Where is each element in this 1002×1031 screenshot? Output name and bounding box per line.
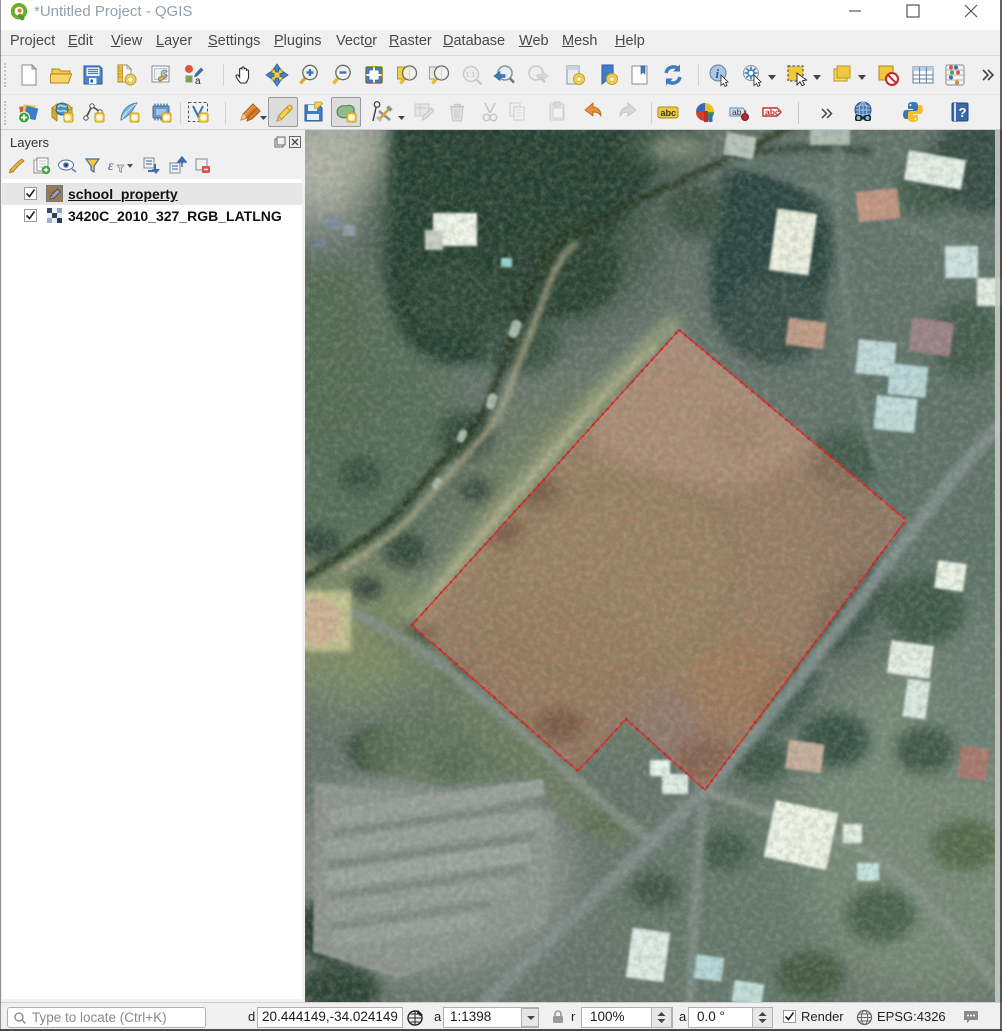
svg-text:1:1: 1:1 — [466, 72, 476, 79]
svg-text:?: ? — [959, 105, 967, 120]
svg-text:abc: abc — [661, 108, 677, 118]
svg-text:ε: ε — [108, 159, 114, 174]
svg-text:abc: abc — [765, 107, 780, 117]
svg-text:i: i — [716, 66, 720, 81]
svg-text:ab: ab — [732, 107, 742, 117]
svg-text:a: a — [195, 76, 201, 87]
